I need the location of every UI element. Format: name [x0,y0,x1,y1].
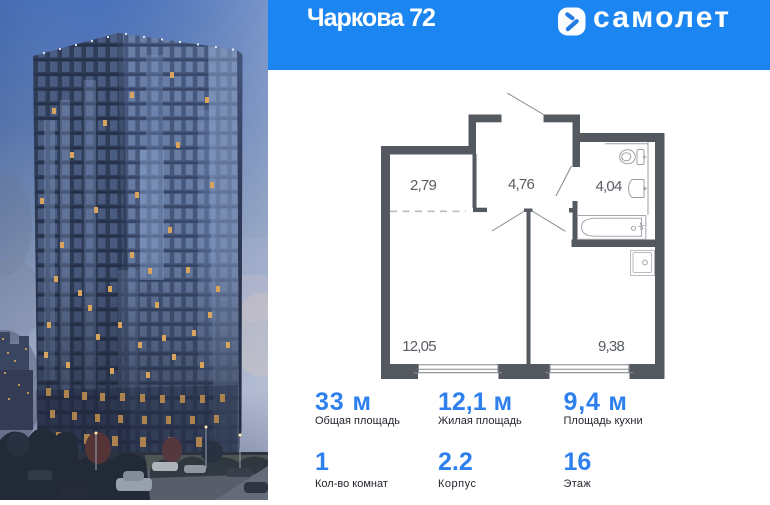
svg-text:2,79: 2,79 [410,177,436,194]
svg-text:9,38: 9,38 [598,338,624,355]
svg-text:4,04: 4,04 [596,178,622,195]
svg-text:12,05: 12,05 [402,338,436,355]
svg-text:4,76: 4,76 [508,176,534,193]
